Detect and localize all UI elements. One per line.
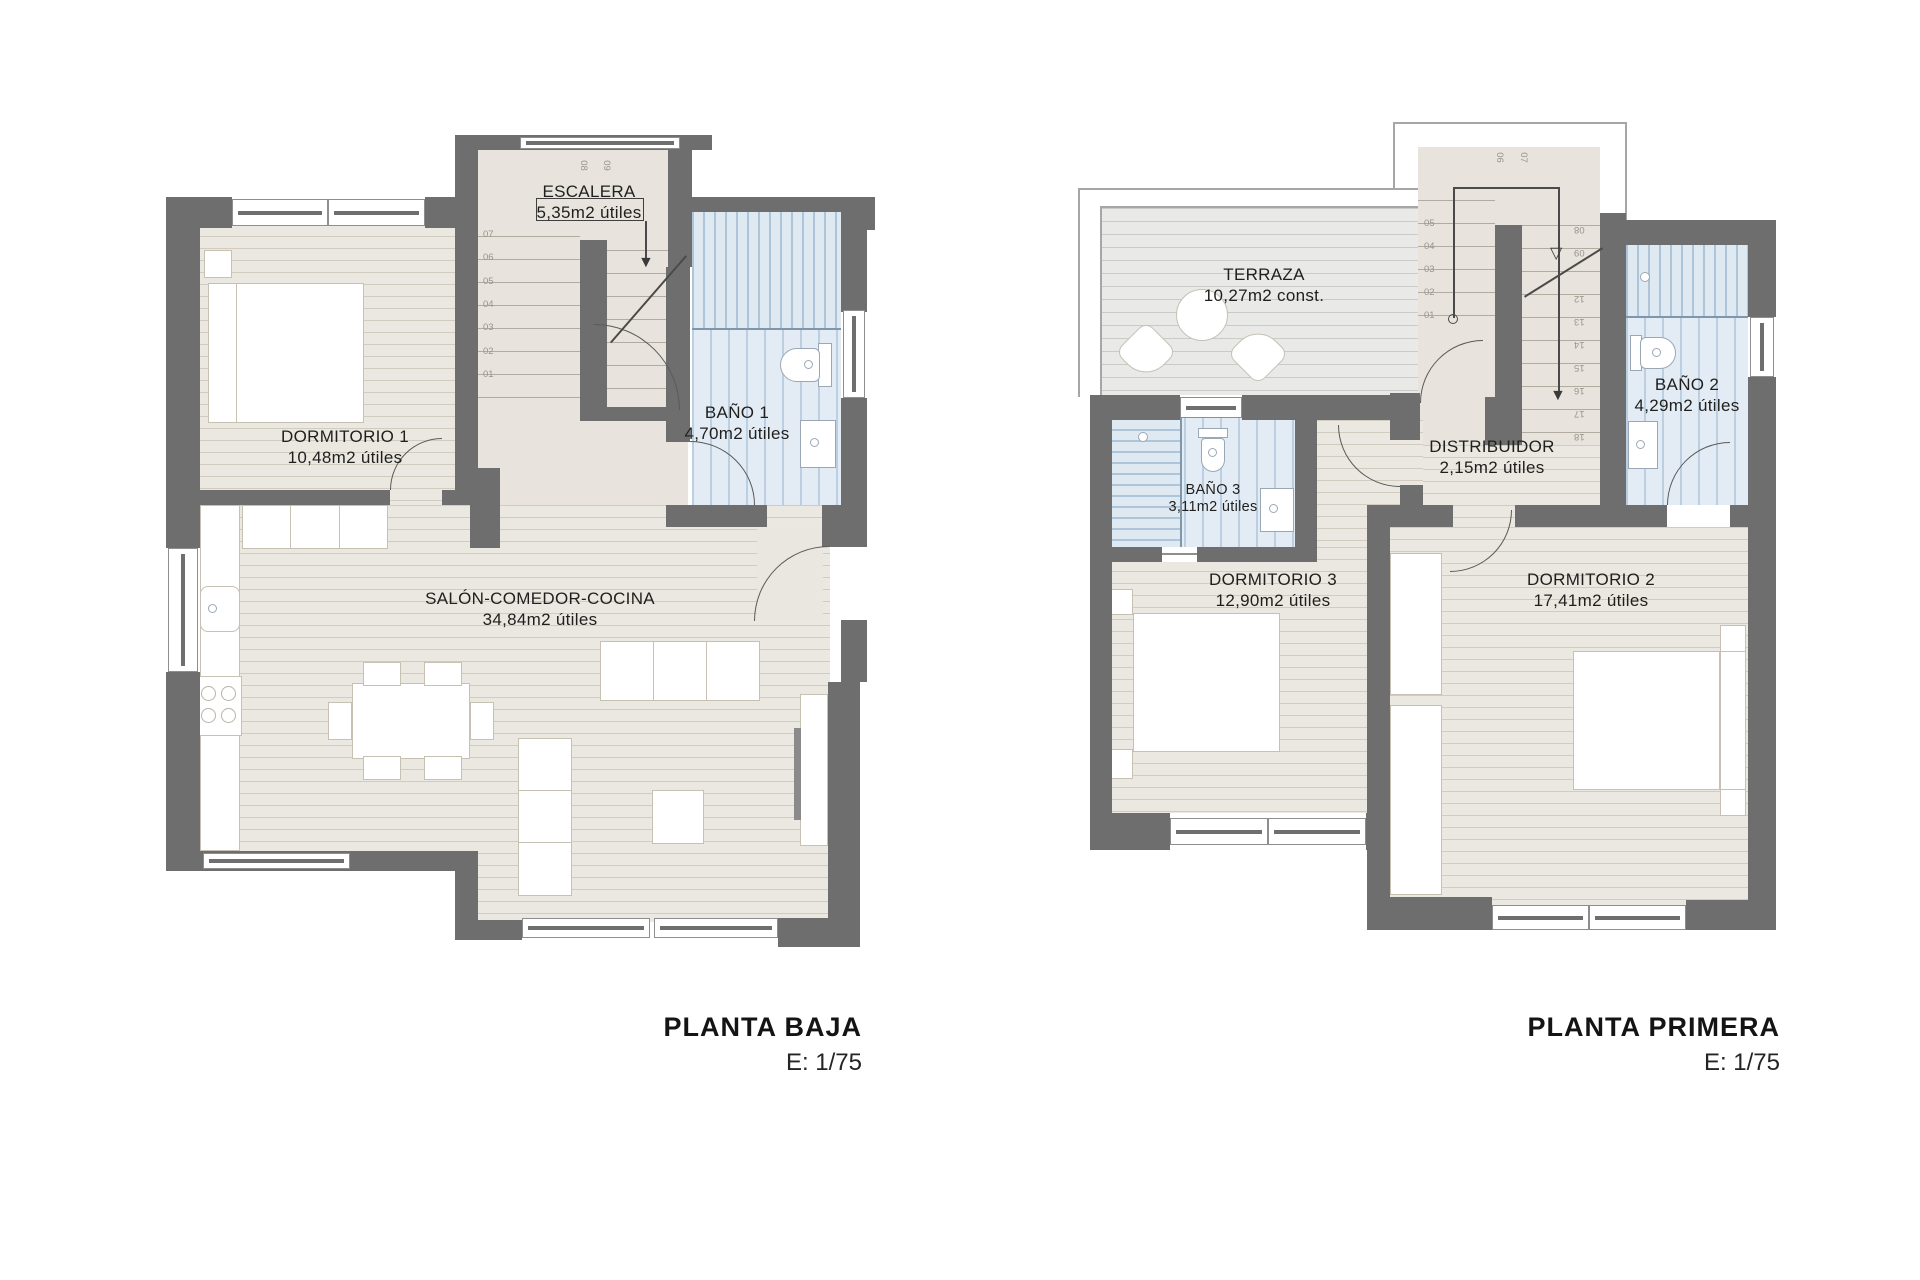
roof-outline: [1078, 188, 1420, 190]
stair-step-number: 13: [1574, 316, 1585, 327]
shower-head-icon: [1138, 432, 1148, 442]
room-area: 2,15m2 útiles: [1429, 457, 1554, 478]
room-label-terraza: TERRAZA 10,27m2 const.: [1204, 264, 1324, 306]
room-label-dormitorio-3: DORMITORIO 3 12,90m2 útiles: [1209, 569, 1337, 611]
room-area: 10,27m2 const.: [1204, 285, 1324, 306]
wall-segment: [1626, 505, 1667, 527]
headboard-strip: [1720, 651, 1746, 790]
room-label-salon: SALÓN-COMEDOR-COCINA 34,84m2 útiles: [425, 588, 655, 630]
room-area: 3,11m2 útiles: [1168, 499, 1257, 516]
wall-segment: [166, 212, 200, 548]
wall-segment: [1600, 445, 1626, 527]
roof-outline: [1393, 122, 1395, 190]
headboard: [1720, 788, 1746, 816]
sofa-cushion-line: [519, 842, 571, 843]
window: [328, 199, 425, 226]
headboard: [1720, 625, 1746, 653]
room-name: TERRAZA: [1204, 264, 1324, 285]
dining-chair: [424, 662, 462, 686]
sofa-cushion-line: [653, 642, 654, 700]
room-name: SALÓN-COMEDOR-COCINA: [425, 588, 655, 609]
sink-tap-icon: [1269, 504, 1278, 513]
window: [168, 548, 198, 672]
wall-segment: [1600, 213, 1626, 445]
toilet-flush-icon: [1208, 448, 1217, 457]
stair-step-number: 02: [483, 346, 494, 357]
dining-table: [352, 683, 470, 759]
wall-segment: [1090, 813, 1170, 850]
stairs-direction-arrow-icon: ▽: [1550, 246, 1562, 262]
dining-chair: [363, 756, 401, 780]
wall-segment: [1367, 505, 1390, 547]
room-label-bano-1: BAÑO 1 4,70m2 útiles: [684, 402, 789, 444]
toilet-flush-icon: [1652, 348, 1661, 357]
wall-segment: [1515, 505, 1600, 527]
wall-segment: [841, 212, 867, 312]
toilet-tank: [818, 343, 832, 387]
wall-segment: [200, 490, 390, 505]
wall-segment: [1197, 547, 1317, 562]
pillow-line: [236, 284, 237, 422]
room-name: DORMITORIO 2: [1527, 569, 1655, 590]
closet: [1390, 553, 1442, 695]
stair-path-line: [1558, 187, 1560, 395]
wall-segment: [1600, 220, 1776, 245]
wall-segment: [1748, 377, 1776, 930]
bed-dormitorio-1: [208, 283, 364, 423]
stair-step-number: 02: [1424, 287, 1435, 298]
wall-segment: [841, 398, 867, 507]
wall-segment: [778, 918, 860, 947]
plan-title-planta-primera: PLANTA PRIMERA E: 1/75: [1380, 1012, 1780, 1077]
coffee-table: [652, 790, 704, 844]
stair-step-number: 01: [1424, 310, 1435, 321]
sofa-cushion-line: [519, 790, 571, 791]
room-area: 4,70m2 útiles: [684, 423, 789, 444]
wall-segment: [666, 505, 767, 527]
wall-segment: [455, 212, 478, 490]
tv-icon: [794, 728, 801, 820]
plan-title: PLANTA BAJA: [462, 1012, 862, 1043]
wall-segment: [1367, 547, 1390, 930]
toilet-tank: [1198, 428, 1228, 438]
nightstand: [204, 250, 232, 278]
room-area: 5,35m2 útiles: [536, 202, 641, 223]
tv-unit: [800, 694, 828, 846]
stair-step-number: 12: [1574, 293, 1585, 304]
pillow: [1109, 589, 1133, 615]
closet: [1390, 705, 1442, 895]
roof-outline: [1393, 122, 1627, 124]
stair-step-number: 18: [1574, 431, 1585, 442]
wall-segment: [470, 468, 500, 548]
room-area: 34,84m2 útiles: [425, 609, 655, 630]
wall-segment: [822, 505, 867, 547]
stair-spine-wall: [1495, 225, 1522, 420]
sofa-side: [518, 738, 572, 896]
window: [520, 137, 680, 149]
stair-step-number: 08: [578, 160, 589, 171]
room-area: 10,48m2 útiles: [281, 447, 409, 468]
room-label-dormitorio-1: DORMITORIO 1 10,48m2 útiles: [281, 426, 409, 468]
dining-chair: [424, 756, 462, 780]
wall-segment: [478, 920, 522, 940]
window: [654, 918, 778, 938]
room-label-distribuidor: DISTRIBUIDOR 2,15m2 útiles: [1429, 436, 1554, 478]
sofa-three-seat: [600, 641, 760, 701]
shower-bano-1: [692, 212, 841, 330]
window: [232, 199, 328, 226]
window: [203, 853, 350, 869]
stairs-down-arrow-icon: ▼: [1550, 388, 1566, 404]
stair-step-number: 09: [1574, 247, 1585, 258]
room-name: BAÑO 2: [1634, 374, 1739, 395]
stairs-down-arrow-icon: ▼: [638, 255, 654, 271]
wall-segment: [166, 672, 200, 853]
burner-icon: [201, 708, 216, 723]
roof-outline: [1625, 122, 1627, 222]
room-name: DORMITORIO 1: [281, 426, 409, 447]
sink-drain-icon: [208, 604, 217, 613]
toilet-flush-icon: [804, 360, 813, 369]
window: [843, 310, 865, 398]
window: [1589, 905, 1686, 930]
stair-step-number: 05: [483, 276, 494, 287]
window: [522, 918, 650, 938]
wardrobe: [242, 505, 388, 549]
sofa-cushion-line: [706, 642, 707, 700]
burner-icon: [201, 686, 216, 701]
shower-screen-line: [1626, 316, 1748, 318]
stair-step-number: 07: [1518, 152, 1529, 163]
wall-segment: [828, 682, 860, 922]
stair-step-number: 05: [1424, 218, 1435, 229]
kitchen-stove: [196, 676, 242, 736]
wall-segment: [1112, 547, 1162, 562]
room-area: 12,90m2 útiles: [1209, 590, 1337, 611]
stair-step-number: 06: [483, 252, 494, 263]
wardrobe-divider: [290, 506, 291, 548]
window: [1180, 397, 1242, 418]
stair-path-line: [1453, 187, 1455, 318]
door-bano-3-line: [1162, 553, 1197, 555]
kitchen-sink: [200, 586, 240, 632]
window: [1492, 905, 1589, 930]
stair-step-number: 16: [1574, 385, 1585, 396]
stair-step-number: 03: [1424, 264, 1435, 275]
stair-step-number: 15: [1574, 362, 1585, 373]
dining-chair: [363, 662, 401, 686]
plan-scale: E: 1/75: [462, 1049, 862, 1077]
stair-step-number: 01: [483, 369, 494, 380]
wall-segment: [1390, 505, 1453, 527]
stair-step-number: 09: [601, 160, 612, 171]
stair-step-number: 03: [483, 322, 494, 333]
toilet-icon: [780, 348, 820, 382]
window: [1170, 818, 1268, 845]
shower-head-icon: [1640, 272, 1650, 282]
sink-tap-icon: [810, 438, 819, 447]
stair-step-number: 08: [1574, 224, 1585, 235]
plan-title: PLANTA PRIMERA: [1380, 1012, 1780, 1043]
stair-step-number: 06: [1494, 152, 1505, 163]
wardrobe-divider: [339, 506, 340, 548]
window: [1268, 818, 1366, 845]
room-name: DORMITORIO 3: [1209, 569, 1337, 590]
room-area: 4,29m2 útiles: [1634, 395, 1739, 416]
stair-step-number: 17: [1574, 408, 1585, 419]
shower-screen-line: [692, 328, 841, 330]
pillow: [1109, 749, 1133, 779]
floorplan-sheet: ▼ 01 02 03 04 05 06 07 08 09 DORMITORIO …: [0, 0, 1920, 1280]
stair-step-number: 14: [1574, 339, 1585, 350]
roof-outline: [1078, 188, 1080, 397]
dining-chair: [328, 702, 352, 740]
room-name: BAÑO 1: [684, 402, 789, 423]
bed-dormitorio-2: [1573, 651, 1720, 790]
window: [1750, 317, 1774, 377]
room-name: BAÑO 3: [1168, 482, 1257, 499]
plan-title-planta-baja: PLANTA BAJA E: 1/75: [462, 1012, 862, 1077]
bed-dormitorio-3: [1133, 613, 1280, 752]
wall-segment: [1730, 505, 1748, 527]
room-label-escalera: ESCALERA 5,35m2 útiles: [536, 181, 641, 223]
room-label-bano-3: BAÑO 3 3,11m2 útiles: [1168, 482, 1257, 516]
room-label-dormitorio-2: DORMITORIO 2 17,41m2 útiles: [1527, 569, 1655, 611]
stair-step-number: 04: [483, 299, 494, 310]
burner-icon: [221, 708, 236, 723]
room-name: DISTRIBUIDOR: [1429, 436, 1554, 457]
stair-step-number: 04: [1424, 241, 1435, 252]
burner-icon: [221, 686, 236, 701]
sink-tap-icon: [1636, 440, 1645, 449]
stair-step-number: 07: [483, 229, 494, 240]
wall-segment: [841, 620, 867, 682]
wall-segment: [1090, 395, 1112, 850]
room-name: ESCALERA: [536, 181, 641, 202]
dining-chair: [470, 702, 494, 740]
room-area: 17,41m2 útiles: [1527, 590, 1655, 611]
wall-segment: [1295, 418, 1317, 547]
plan-scale: E: 1/75: [1380, 1049, 1780, 1077]
stair-path-line: [1453, 187, 1560, 189]
room-label-bano-2: BAÑO 2 4,29m2 útiles: [1634, 374, 1739, 416]
wall-segment: [1390, 897, 1492, 930]
